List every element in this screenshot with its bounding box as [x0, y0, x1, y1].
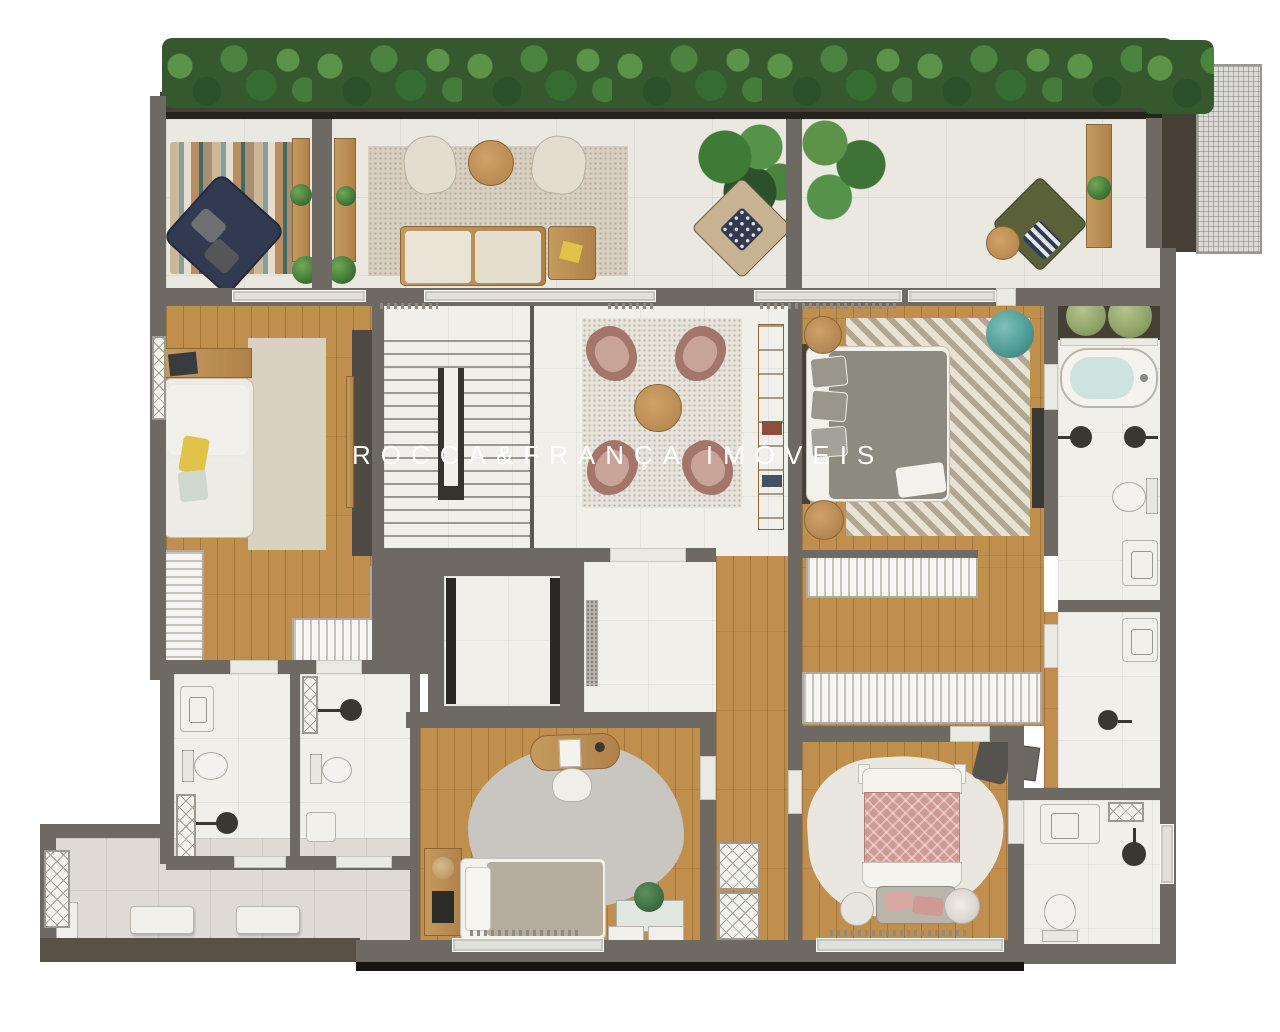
suite2-desk [529, 732, 620, 771]
suite2-side-table [424, 848, 462, 936]
shower-head-icon [1122, 842, 1146, 866]
toilet [1112, 482, 1146, 512]
window [452, 938, 604, 952]
chair-cushion [677, 330, 723, 377]
decor-tray [168, 352, 198, 377]
round-nightstand [804, 316, 842, 354]
green-pouf [634, 882, 664, 912]
wall-suite1-media [372, 304, 384, 556]
master-tv-panel [1032, 408, 1044, 508]
tub-faucet [1140, 374, 1148, 382]
shower-head-icon [1124, 426, 1146, 448]
wall-vent-grille [152, 336, 166, 420]
door-sill [234, 856, 286, 868]
wall-suite3-bath-b [1008, 844, 1024, 948]
shower-head-icon [1070, 426, 1092, 448]
elevator-rail [550, 578, 560, 704]
wall-bath2-suite3bath [1024, 788, 1162, 800]
terrace-side-table [548, 226, 596, 280]
door-sill [700, 756, 716, 800]
wall-corridor-left-a [700, 726, 716, 756]
window [1160, 824, 1174, 884]
wall-block-left-of-elevator [372, 556, 428, 674]
bathtub-water [1070, 357, 1134, 399]
potted-plants [798, 116, 888, 224]
window [816, 938, 1004, 952]
pillow [810, 355, 849, 389]
duvet [487, 862, 603, 936]
linen-cabinet [302, 676, 318, 734]
door-sill [336, 856, 392, 868]
basin [189, 697, 207, 723]
patterned-pillow [719, 207, 764, 252]
chair-cushion [589, 330, 635, 377]
sliding-door-window [424, 290, 656, 302]
service-corridor-floor [54, 838, 412, 944]
floor-plan: ROCCA&FRANÇA IMÓVEIS [0, 0, 1280, 1032]
wall-vent-grille [44, 850, 70, 928]
sink-vanity [306, 812, 336, 842]
door-sill [1044, 624, 1058, 668]
teal-lounge-chair [986, 310, 1034, 358]
bookshelf [758, 324, 784, 530]
wall-terrace-stub [312, 119, 332, 289]
mint-pillow [178, 470, 209, 503]
stair-edge [530, 304, 534, 556]
toilet [1044, 894, 1076, 930]
striped-pillow [1022, 220, 1063, 261]
wall-master-bath-b [1044, 410, 1058, 556]
curtain [760, 303, 898, 309]
elevator-cab-floor [444, 576, 560, 706]
table-lamp [432, 857, 454, 879]
suite1-sofa-bed [162, 378, 254, 538]
wall-bath-divider [290, 674, 300, 860]
toilet-tank [310, 754, 322, 784]
sink-vanity [1122, 540, 1158, 586]
shower-head-icon [340, 699, 362, 721]
shelf-decor [762, 475, 782, 487]
terrace-sofa [400, 226, 546, 286]
master-bed [806, 346, 950, 502]
service-bench [236, 906, 300, 934]
wardrobe [802, 672, 1042, 724]
cushion [190, 207, 228, 245]
hedge-top-right [1142, 40, 1214, 114]
shower-arm [1118, 720, 1132, 723]
suite1-console [164, 348, 252, 378]
toilet [194, 752, 228, 780]
bathtub [1060, 348, 1158, 408]
yellow-tray [559, 241, 583, 263]
terrace-round-side-table [986, 226, 1020, 260]
wall-bottom-right [1024, 944, 1176, 964]
wall-corridor-right-b [788, 814, 802, 948]
desk-lamp [595, 742, 605, 752]
hall-floor [584, 556, 716, 726]
stair-railing [438, 368, 464, 500]
round-nightstand [804, 500, 844, 540]
sofa-cushion [405, 231, 471, 283]
window [754, 290, 902, 302]
sofa-cushion [475, 231, 541, 283]
wardrobe [806, 552, 978, 598]
toilet [322, 757, 352, 783]
wall-corridor-right-a [788, 556, 802, 770]
sink-vanity [1040, 804, 1100, 844]
wall-bottom-dark-strip [356, 962, 1024, 971]
curtain [470, 930, 580, 936]
plant-pot-icon [1087, 176, 1111, 200]
pillow [465, 867, 491, 931]
pink-pillow [912, 895, 944, 916]
suite3-bed-duvet [864, 792, 960, 864]
pillow [810, 389, 848, 422]
decor-frame [432, 891, 454, 923]
sink-vanity [180, 686, 214, 732]
plant-pot-icon [290, 184, 312, 206]
basin [1131, 629, 1153, 655]
window [908, 290, 996, 302]
plant-pot-icon [336, 186, 356, 206]
suite1-rug [248, 338, 326, 550]
bed-foot [862, 862, 962, 888]
hall-closet [718, 842, 760, 890]
cabinet [1108, 802, 1144, 822]
planter-edge-top [160, 112, 1166, 119]
sink-vanity [1122, 618, 1158, 662]
round-pouf [840, 892, 874, 926]
basin [1131, 551, 1153, 579]
pink-pillow [884, 890, 914, 912]
window [232, 290, 366, 302]
hall-door-sill [610, 548, 686, 562]
door-sill [1008, 800, 1024, 844]
wall-terrace-divider [786, 119, 802, 305]
elevator-door-mat [586, 600, 598, 686]
round-coffee-table [634, 384, 682, 432]
hall-closet [718, 892, 760, 940]
wall-living-master [788, 304, 802, 556]
toilet-tank [1042, 930, 1078, 942]
basin [1051, 813, 1079, 839]
round-pouf [944, 888, 980, 924]
watermark-text: ROCCA&FRANÇA IMÓVEIS [352, 440, 884, 471]
door-sill [1044, 364, 1058, 410]
hedge-top [162, 38, 1174, 108]
elevator-rail [446, 578, 456, 704]
shelf-decor [762, 421, 782, 435]
door-sill [788, 770, 802, 814]
desk-papers [559, 739, 582, 768]
terrace-door-sill [996, 288, 1016, 306]
wall-master-bath-a [1044, 304, 1058, 364]
desk-chair [552, 768, 592, 802]
terrace-round-table [468, 140, 514, 186]
curtain [608, 303, 654, 309]
wall-bath1-bath2 [1058, 600, 1160, 612]
wall-right-upper [1146, 118, 1162, 248]
door-sill [950, 726, 990, 742]
bench-sill [1060, 338, 1158, 346]
plant-pot-icon [328, 256, 356, 284]
wall-master-closet [802, 550, 978, 558]
wall-suite3-bath-a [1008, 742, 1024, 800]
bed-headboard [862, 768, 962, 794]
door-sill [316, 660, 362, 674]
curtain [830, 930, 970, 936]
suite2-bed [460, 858, 606, 940]
planter-box-right [1162, 112, 1196, 252]
toilet-tank [182, 750, 194, 782]
door-sill [230, 660, 278, 674]
shower-arm [318, 709, 342, 712]
shower-arm [1144, 436, 1158, 439]
linen-cabinet [176, 794, 196, 858]
cushion [202, 237, 240, 275]
curtain [380, 303, 438, 309]
wall-corridor-left-b [700, 800, 716, 948]
toilet-tank [1146, 478, 1158, 514]
shower-head-icon [216, 812, 238, 834]
wall-service-top [40, 824, 166, 838]
shower-head-icon [1098, 710, 1118, 730]
wall-bottom-brown [40, 938, 360, 962]
service-bench [130, 906, 194, 934]
